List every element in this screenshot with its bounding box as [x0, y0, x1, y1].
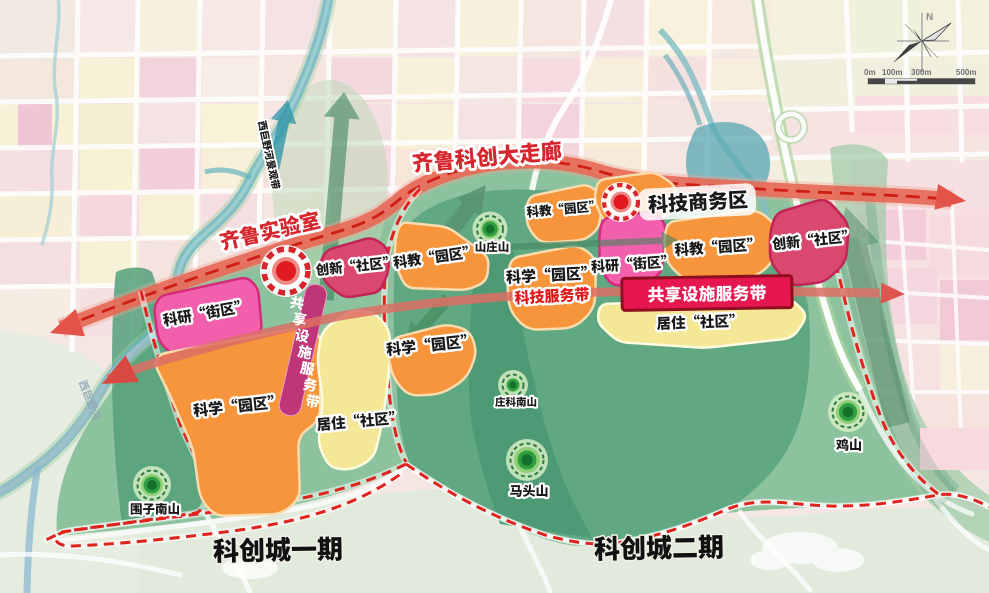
svg-text:300m: 300m: [911, 68, 931, 77]
svg-text:100m: 100m: [882, 68, 902, 77]
svg-text:N: N: [926, 12, 933, 23]
svg-text:500m: 500m: [956, 68, 976, 77]
svg-text:0m: 0m: [864, 68, 876, 77]
